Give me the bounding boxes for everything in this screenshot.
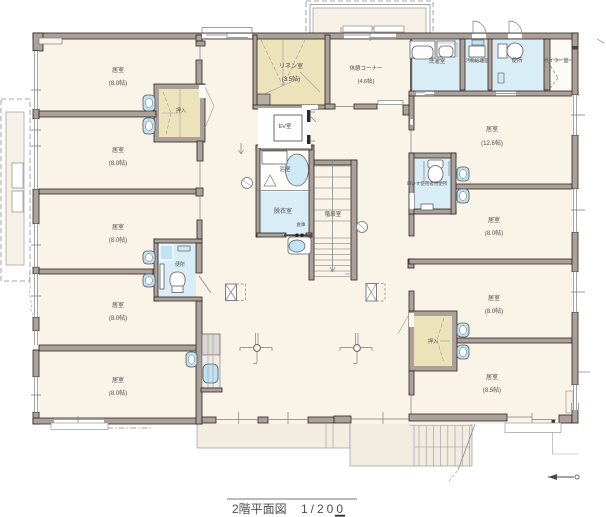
svg-text:(8.0帖): (8.0帖) (109, 79, 127, 87)
svg-text:(8.0帖): (8.0帖) (109, 236, 127, 244)
svg-text:EV室: EV室 (279, 122, 292, 130)
svg-text:(8.0帖): (8.0帖) (109, 389, 127, 397)
svg-text:車いす使用者用便所: 車いす使用者用便所 (407, 180, 448, 187)
svg-text:居室: 居室 (486, 125, 498, 133)
svg-text:汚物処理室: 汚物処理室 (466, 57, 489, 64)
svg-text:便所: 便所 (511, 56, 523, 64)
svg-text:休憩コーナー: 休憩コーナー (349, 64, 382, 72)
svg-text:階段室: 階段室 (325, 210, 342, 218)
svg-text:ボイラー室: ボイラー室 (543, 57, 568, 64)
svg-text:(8.0帖): (8.0帖) (109, 159, 127, 167)
svg-text:洗濯室: 洗濯室 (429, 57, 446, 65)
svg-text:押入: 押入 (176, 107, 186, 114)
svg-text:便所: 便所 (175, 261, 185, 268)
svg-text:2階平面図: 2階平面図 (232, 501, 287, 516)
svg-text:(4.6帖): (4.6帖) (358, 77, 375, 85)
svg-text:倉庫: 倉庫 (297, 221, 306, 228)
svg-text:浴室: 浴室 (279, 165, 291, 173)
svg-text:(3.5帖): (3.5帖) (282, 75, 300, 83)
svg-text:居室: 居室 (488, 216, 500, 224)
svg-text:居室: 居室 (112, 66, 124, 74)
svg-text:押入: 押入 (428, 338, 438, 345)
svg-text:(8.5帖): (8.5帖) (483, 386, 501, 394)
svg-text:(8.0帖): (8.0帖) (109, 314, 127, 322)
svg-text:居室: 居室 (112, 376, 124, 384)
svg-text:リネン室: リネン室 (279, 62, 303, 70)
svg-text:(12.6帖): (12.6帖) (481, 139, 503, 147)
svg-text:1/200: 1/200 (301, 502, 346, 516)
svg-text:居室: 居室 (112, 223, 124, 231)
svg-text:脱衣室: 脱衣室 (274, 207, 292, 215)
svg-text:居室: 居室 (112, 146, 124, 154)
svg-text:居室: 居室 (486, 373, 498, 381)
svg-text:居室: 居室 (112, 301, 124, 309)
svg-text:居室: 居室 (488, 294, 500, 302)
svg-text:(8.0帖): (8.0帖) (485, 229, 503, 237)
svg-text:(8.0帖): (8.0帖) (485, 307, 503, 315)
